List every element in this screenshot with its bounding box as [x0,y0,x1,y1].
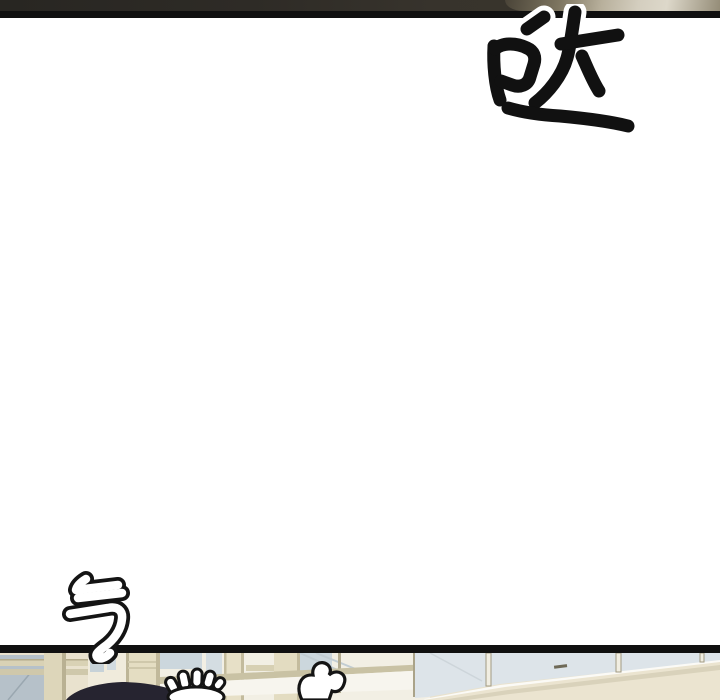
scene-right-balustrade [415,653,720,700]
sfx-qi-lettering [48,568,148,664]
sfx-da-lettering [470,4,635,136]
comic-page [0,0,720,700]
